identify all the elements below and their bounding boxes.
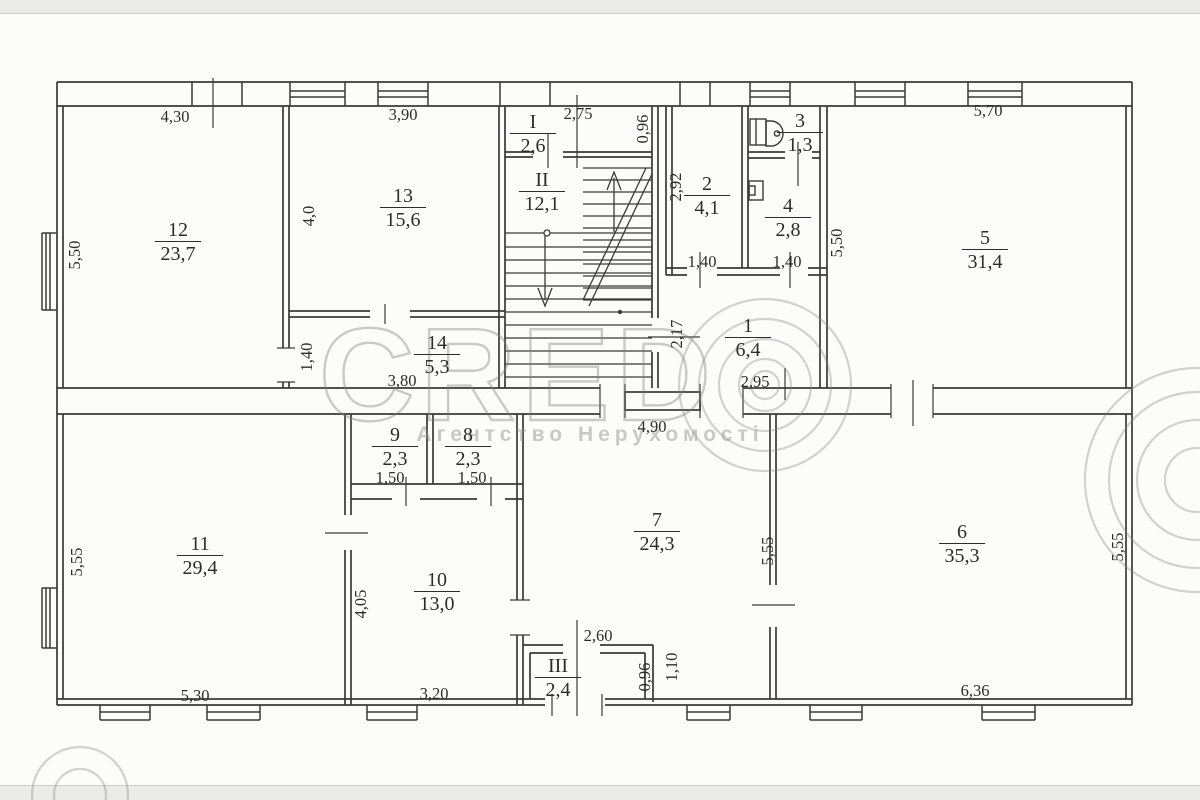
dim-label: 5,55 bbox=[67, 548, 87, 577]
sink-icon bbox=[749, 181, 763, 200]
room-label-2: 24,1 bbox=[684, 174, 730, 219]
room-label-5: 531,4 bbox=[962, 228, 1008, 273]
dim-label: 2,17 bbox=[667, 320, 687, 349]
room-label-14: 145,3 bbox=[414, 333, 460, 378]
dim-label: 1,10 bbox=[662, 653, 682, 682]
dim-label: 2,60 bbox=[584, 626, 613, 646]
dim-label: 4,0 bbox=[299, 206, 319, 227]
dim-label: 5,55 bbox=[1108, 533, 1128, 562]
room-label-8: 82,3 bbox=[445, 425, 491, 470]
dim-label: 4,90 bbox=[638, 417, 667, 437]
room-label-II: II12,1 bbox=[519, 170, 565, 215]
dim-label: 1,40 bbox=[773, 252, 802, 272]
dim-label: 5,70 bbox=[974, 101, 1003, 121]
room-label-1: 16,4 bbox=[725, 316, 771, 361]
dim-label: 5,50 bbox=[827, 229, 847, 258]
dim-label: 2,75 bbox=[564, 104, 593, 124]
room-label-12: 1223,7 bbox=[155, 220, 201, 265]
dim-label: 4,05 bbox=[351, 590, 371, 619]
dim-label: 2,92 bbox=[666, 173, 686, 202]
dim-label: 5,55 bbox=[758, 537, 778, 566]
dim-label: 1,50 bbox=[376, 468, 405, 488]
dim-label: 2,95 bbox=[741, 372, 770, 392]
dim-label: 4,30 bbox=[161, 107, 190, 127]
room-label-11: 1129,4 bbox=[177, 534, 223, 579]
room-label-I: I2,6 bbox=[510, 112, 556, 157]
room-label-13: 1315,6 bbox=[380, 186, 426, 231]
floorplan-canvas: CRED Агентство Нерухомості 1223,7 1315,6… bbox=[0, 0, 1200, 800]
dim-label: 0,96 bbox=[635, 663, 655, 692]
dim-label: 5,50 bbox=[65, 241, 85, 270]
room-label-III: III2,4 bbox=[535, 656, 581, 701]
dim-label: 3,80 bbox=[388, 371, 417, 391]
room-label-3: 31,3 bbox=[777, 111, 823, 156]
room-label-10: 1013,0 bbox=[414, 570, 460, 615]
dim-label: 3,90 bbox=[389, 105, 418, 125]
dim-label: 1,40 bbox=[688, 252, 717, 272]
room-label-6: 635,3 bbox=[939, 522, 985, 567]
dim-label: 3,20 bbox=[420, 684, 449, 704]
stair-up-arrow-icon bbox=[607, 172, 621, 232]
room-label-7: 724,3 bbox=[634, 510, 680, 555]
dim-label: 1,40 bbox=[297, 343, 317, 372]
room-label-9: 92,3 bbox=[372, 425, 418, 470]
dim-label: 1,50 bbox=[458, 468, 487, 488]
dim-label: 6,36 bbox=[961, 681, 990, 701]
dim-label: 0,96 bbox=[633, 115, 653, 144]
room-label-4: 42,8 bbox=[765, 196, 811, 241]
dim-label: 5,30 bbox=[181, 686, 210, 706]
